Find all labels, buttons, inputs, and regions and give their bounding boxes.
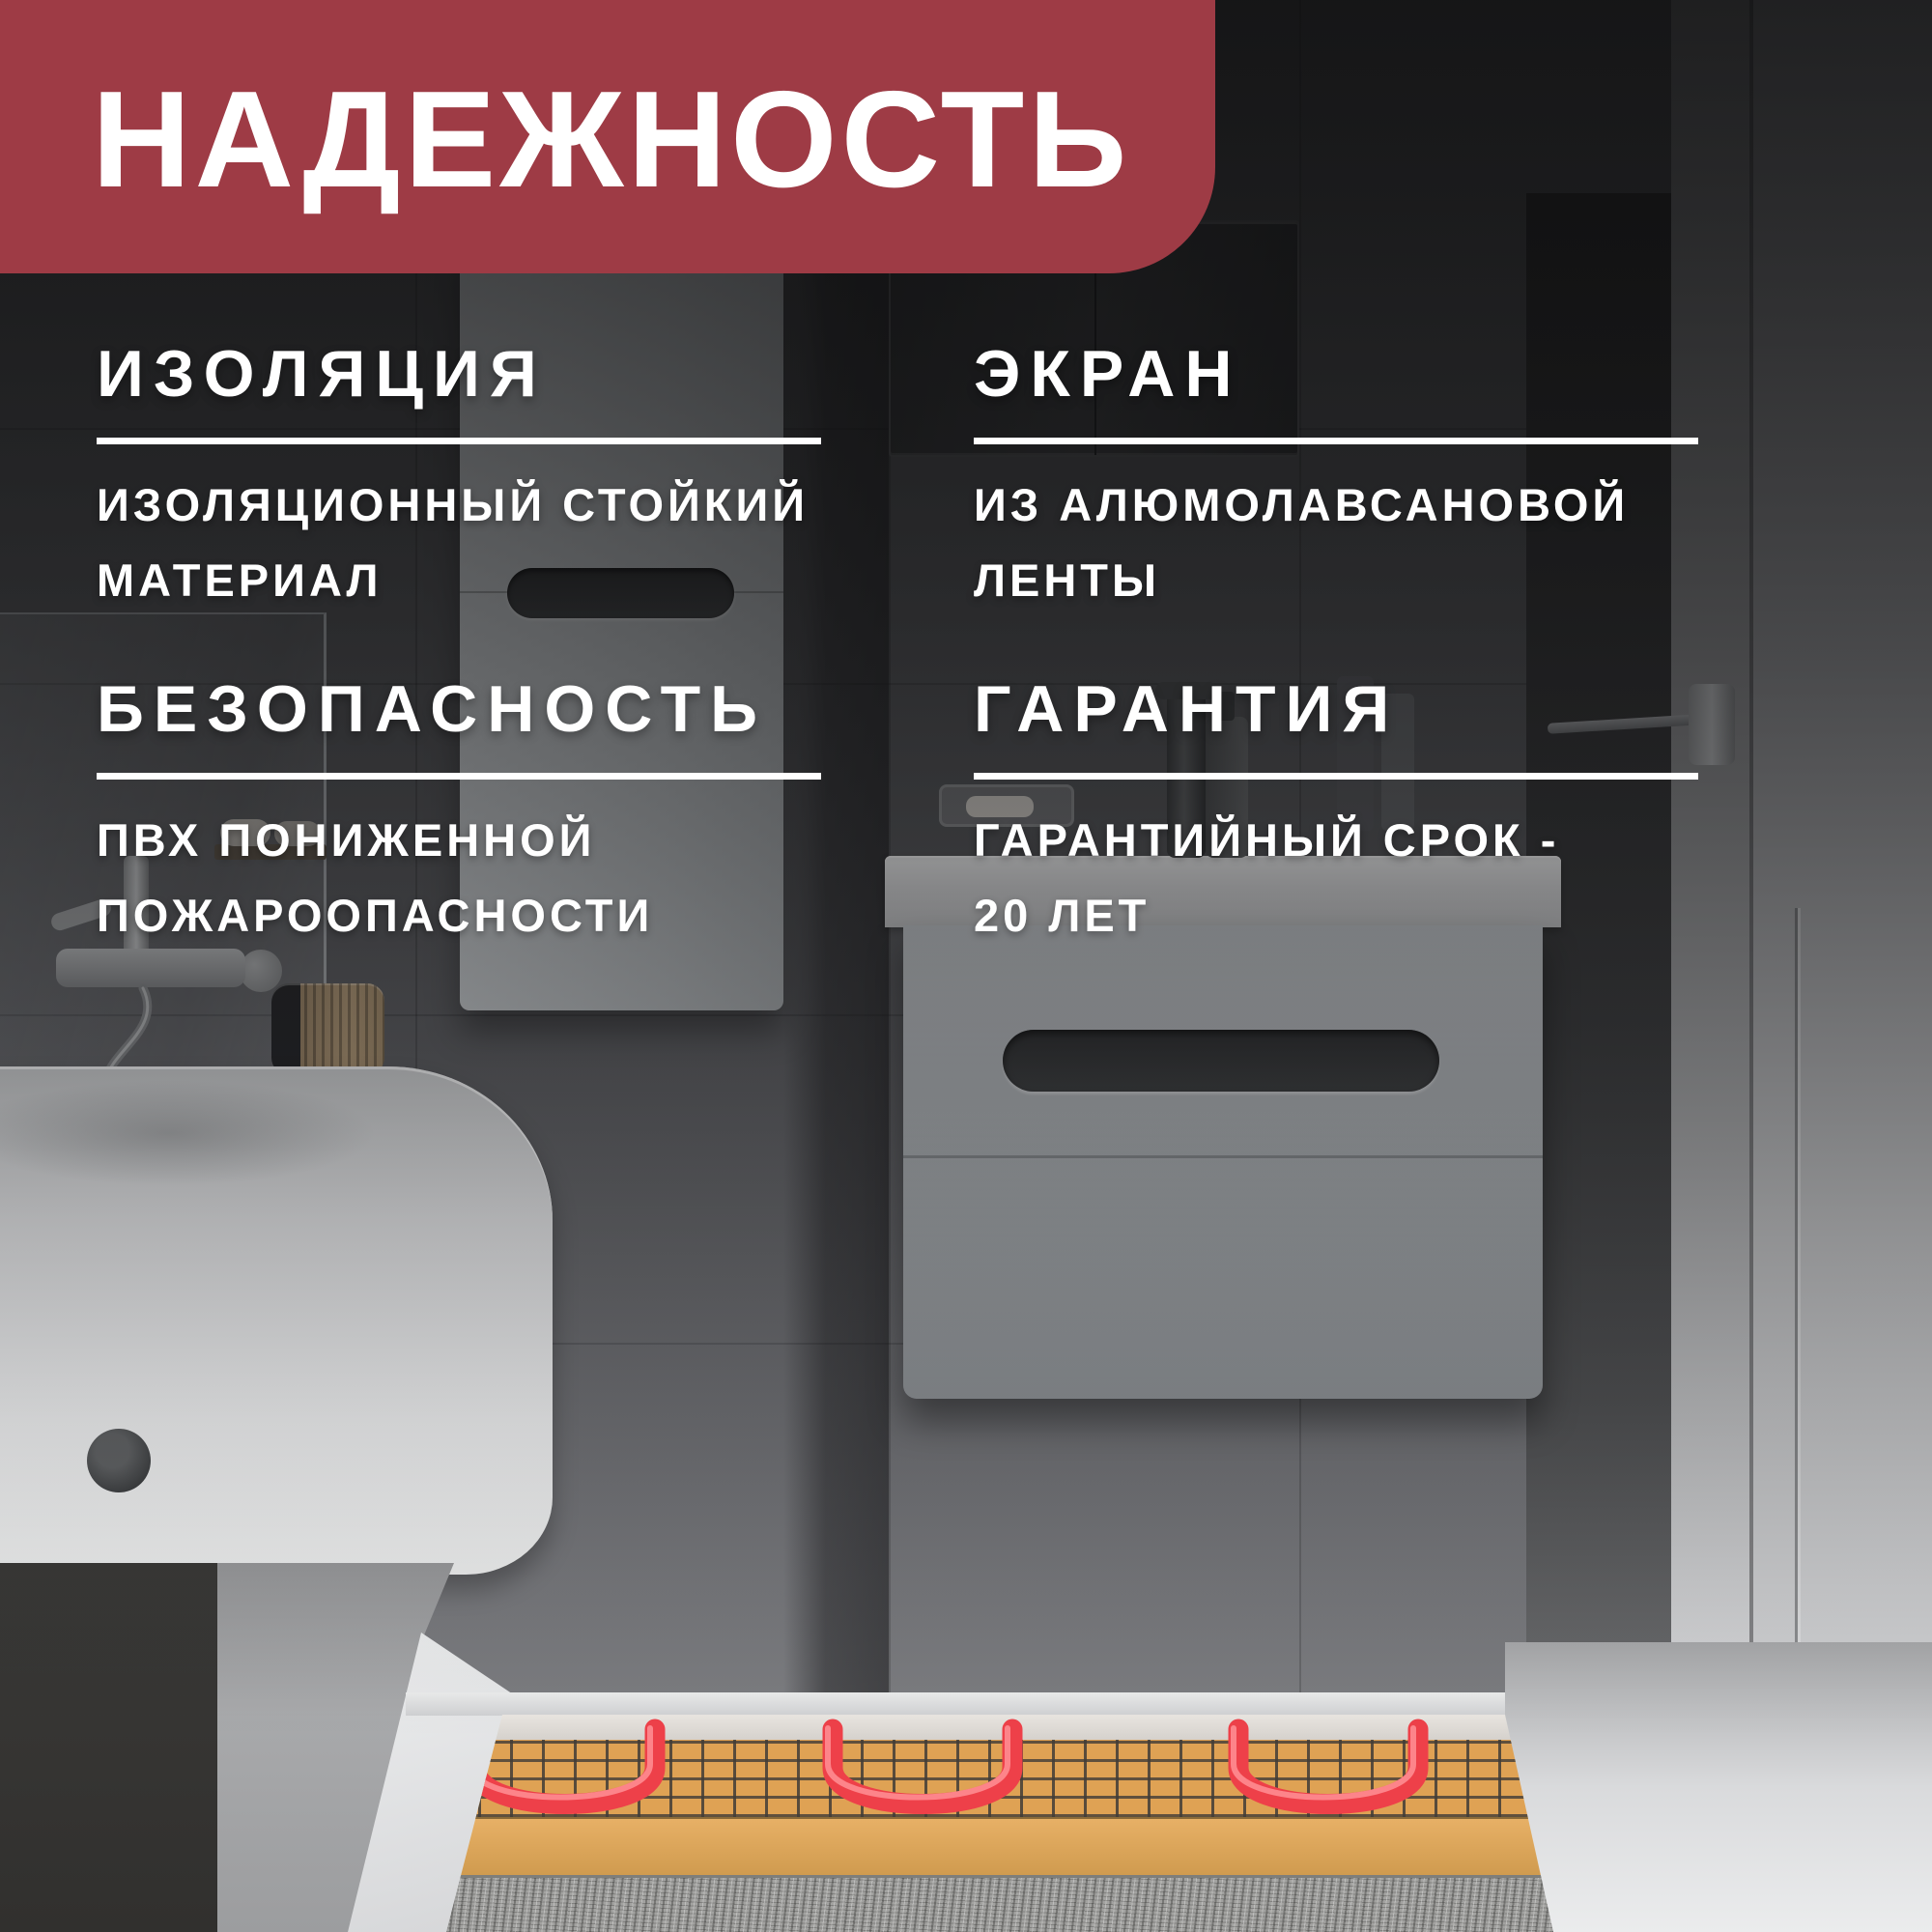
feature-desc-line: ИЗ АЛЮМОЛАВСАНОВОЙ xyxy=(974,482,1629,527)
feature-title: ИЗОЛЯЦИЯ xyxy=(97,341,547,407)
feature-desc-line: 20 ЛЕТ xyxy=(974,893,1150,938)
feature-screen: ЭКРАН ИЗ АЛЮМОЛАВСАНОВОЙ ЛЕНТЫ xyxy=(974,341,1804,631)
feature-safety: БЕЗОПАСНОСТЬ ПВХ ПОНИЖЕННОЙ ПОЖАРООПАСНО… xyxy=(97,676,927,966)
divider-line xyxy=(974,773,1698,780)
photo-dim-gradient xyxy=(0,0,1932,1932)
feature-title: БЕЗОПАСНОСТЬ xyxy=(97,676,767,742)
feature-desc-line: ПВХ ПОНИЖЕННОЙ xyxy=(97,817,595,863)
divider-line xyxy=(97,438,821,444)
title-badge: НАДЕЖНОСТЬ xyxy=(0,0,1215,273)
feature-desc-line: ПОЖАРООПАСНОСТИ xyxy=(97,893,653,938)
feature-warranty: ГАРАНТИЯ ГАРАНТИЙНЫЙ СРОК - 20 ЛЕТ xyxy=(974,676,1804,966)
feature-title: ГАРАНТИЯ xyxy=(974,676,1399,742)
promo-infographic: НАДЕЖНОСТЬ ИЗОЛЯЦИЯ ИЗОЛЯЦИОННЫЙ СТОЙКИЙ… xyxy=(0,0,1932,1932)
feature-desc-line: ЛЕНТЫ xyxy=(974,557,1160,603)
divider-line xyxy=(97,773,821,780)
badge-title: НАДЕЖНОСТЬ xyxy=(92,71,1130,209)
feature-desc-line: МАТЕРИАЛ xyxy=(97,557,382,603)
divider-line xyxy=(974,438,1698,444)
feature-title: ЭКРАН xyxy=(974,341,1241,407)
feature-desc-line: ГАРАНТИЙНЫЙ СРОК - xyxy=(974,817,1559,863)
feature-insulation: ИЗОЛЯЦИЯ ИЗОЛЯЦИОННЫЙ СТОЙКИЙ МАТЕРИАЛ xyxy=(97,341,927,631)
feature-desc-line: ИЗОЛЯЦИОННЫЙ СТОЙКИЙ xyxy=(97,482,809,527)
